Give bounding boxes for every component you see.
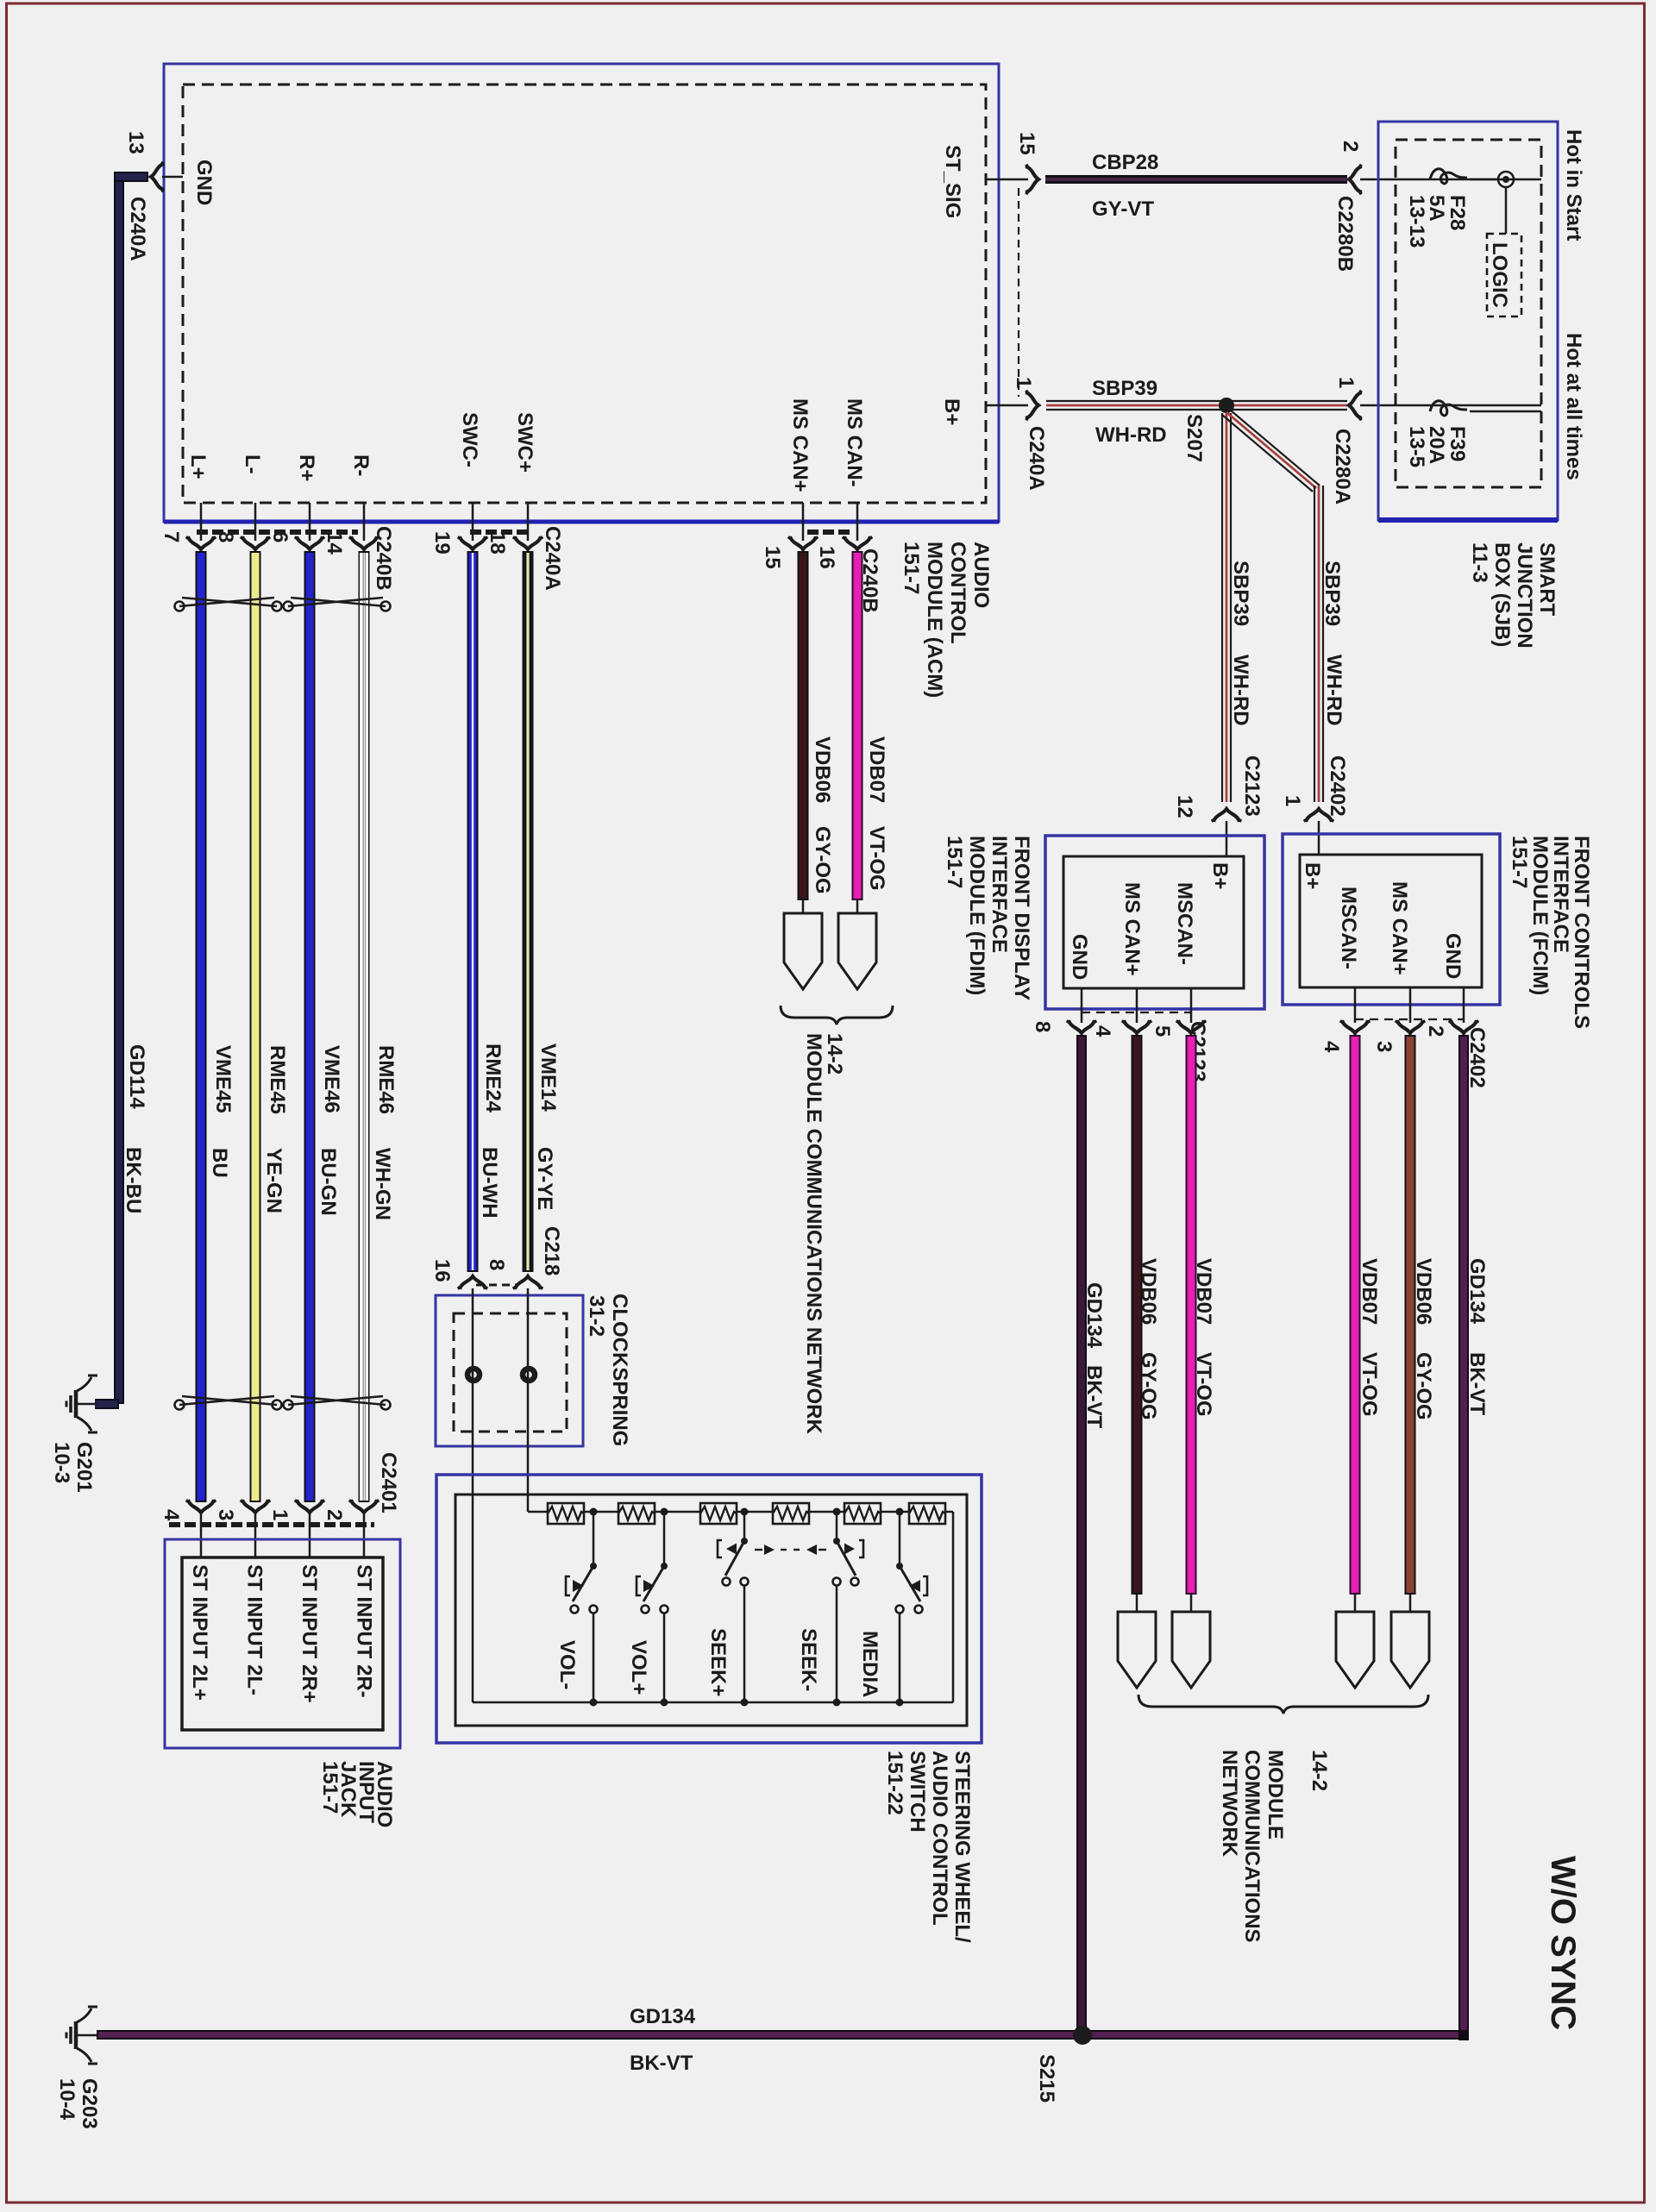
svg-text:ST INPUT 2L-: ST INPUT 2L- xyxy=(243,1564,267,1695)
svg-text:15: 15 xyxy=(1015,132,1038,155)
svg-text:13-5: 13-5 xyxy=(1405,426,1428,467)
svg-text:4: 4 xyxy=(160,1509,183,1521)
svg-text:BK-VT: BK-VT xyxy=(630,2052,693,2075)
svg-text:AUDIO CONTROL: AUDIO CONTROL xyxy=(928,1751,951,1926)
svg-text:VOL+: VOL+ xyxy=(627,1640,650,1695)
svg-text:ST_SIG: ST_SIG xyxy=(941,145,964,218)
svg-text:C218: C218 xyxy=(540,1226,563,1275)
svg-text:VDB07: VDB07 xyxy=(1192,1258,1215,1325)
svg-text:GND: GND xyxy=(1441,933,1465,979)
svg-text:VT-OG: VT-OG xyxy=(1358,1352,1381,1417)
svg-text:Hot at all times: Hot at all times xyxy=(1562,333,1585,480)
svg-text:SEEK+: SEEK+ xyxy=(706,1628,730,1696)
svg-text:7: 7 xyxy=(160,531,183,542)
svg-text:151-7: 151-7 xyxy=(943,836,966,888)
svg-text:C2402: C2402 xyxy=(1326,755,1349,817)
svg-text:GD114: GD114 xyxy=(125,1044,148,1109)
svg-text:STEERING WHEEL/: STEERING WHEEL/ xyxy=(950,1751,974,1943)
svg-text:ST INPUT 2R-: ST INPUT 2R- xyxy=(353,1564,376,1698)
svg-text:1: 1 xyxy=(1334,377,1358,388)
svg-text:10-3: 10-3 xyxy=(50,1442,73,1483)
svg-text:C2401: C2401 xyxy=(377,1452,400,1513)
svg-text:Hot in Start: Hot in Start xyxy=(1562,129,1585,241)
svg-text:VDB06: VDB06 xyxy=(1412,1258,1435,1325)
svg-text:RME46: RME46 xyxy=(374,1045,398,1114)
svg-text:16: 16 xyxy=(430,1259,454,1282)
svg-text:GY-YE: GY-YE xyxy=(533,1147,556,1210)
svg-text:VDB06: VDB06 xyxy=(1137,1258,1160,1325)
svg-text:MODULE (FDIM): MODULE (FDIM) xyxy=(965,836,988,995)
svg-text:SWC+: SWC+ xyxy=(513,412,536,473)
svg-text:MODULE (FCIM): MODULE (FCIM) xyxy=(1528,836,1552,995)
svg-text:2: 2 xyxy=(323,1509,346,1520)
svg-text:JUNCTION: JUNCTION xyxy=(1513,542,1536,649)
svg-text:B+: B+ xyxy=(940,398,963,425)
svg-text:C2280A: C2280A xyxy=(1331,429,1354,504)
svg-text:14-2: 14-2 xyxy=(1308,1750,1331,1791)
svg-text:COMMUNICATIONS: COMMUNICATIONS xyxy=(1240,1750,1264,1943)
svg-text:GD134: GD134 xyxy=(1465,1258,1489,1325)
svg-text:NETWORK: NETWORK xyxy=(1218,1750,1241,1858)
svg-text:RME24: RME24 xyxy=(481,1043,505,1113)
svg-text:SBP39: SBP39 xyxy=(1229,561,1252,626)
svg-text:ST INPUT 2L+: ST INPUT 2L+ xyxy=(188,1564,211,1701)
svg-text:11-3: 11-3 xyxy=(1468,542,1491,583)
svg-text:BU: BU xyxy=(208,1148,231,1178)
svg-text:14: 14 xyxy=(323,531,346,555)
svg-text:C240B: C240B xyxy=(858,548,881,613)
svg-text:FRONT CONTROLS: FRONT CONTROLS xyxy=(1570,836,1593,1029)
svg-text:GND: GND xyxy=(192,160,216,205)
svg-text:SBP39: SBP39 xyxy=(1092,377,1157,400)
svg-text:VME14: VME14 xyxy=(536,1043,560,1112)
svg-text:MSCAN-: MSCAN- xyxy=(1173,882,1196,965)
svg-text:VDB06: VDB06 xyxy=(811,736,834,803)
svg-text:151-7: 151-7 xyxy=(318,1761,342,1814)
svg-text:B+: B+ xyxy=(1208,862,1232,889)
svg-text:MODULE (ACM): MODULE (ACM) xyxy=(923,542,946,698)
svg-text:MEDIA: MEDIA xyxy=(858,1631,881,1697)
svg-text:BK-VT: BK-VT xyxy=(1465,1352,1489,1416)
svg-text:BOX (SJB): BOX (SJB) xyxy=(1490,542,1514,647)
svg-text:12: 12 xyxy=(1173,795,1196,818)
svg-text:151-22: 151-22 xyxy=(883,1751,906,1815)
svg-text:VOL-: VOL- xyxy=(555,1640,579,1689)
svg-text:F39: F39 xyxy=(1446,426,1469,461)
svg-text:AUDIO: AUDIO xyxy=(969,542,993,608)
svg-text:BU-GN: BU-GN xyxy=(317,1148,340,1216)
svg-text:GD134: GD134 xyxy=(630,2005,696,2028)
svg-text:R+: R+ xyxy=(295,454,318,481)
svg-text:L-: L- xyxy=(241,454,264,474)
svg-text:CLOCKSPRING: CLOCKSPRING xyxy=(608,1294,631,1446)
svg-text:151-7: 151-7 xyxy=(900,542,923,594)
svg-text:BK-BU: BK-BU xyxy=(122,1147,145,1213)
svg-text:GY-OG: GY-OG xyxy=(811,826,834,894)
svg-text:MS CAN+: MS CAN+ xyxy=(1388,881,1411,975)
svg-text:4: 4 xyxy=(1320,1041,1343,1053)
svg-text:SEEK-: SEEK- xyxy=(797,1628,820,1691)
svg-text:VT-OG: VT-OG xyxy=(865,826,888,891)
svg-text:CONTROL: CONTROL xyxy=(946,542,969,644)
svg-text:MS CAN+: MS CAN+ xyxy=(788,398,812,492)
svg-text:C240A: C240A xyxy=(126,197,149,261)
svg-text:VDB07: VDB07 xyxy=(1358,1258,1381,1325)
svg-text:MSCAN-: MSCAN- xyxy=(1337,887,1360,969)
svg-text:SWC-: SWC- xyxy=(458,412,481,467)
svg-text:VME46: VME46 xyxy=(320,1045,343,1113)
svg-text:ST INPUT 2R+: ST INPUT 2R+ xyxy=(298,1564,321,1703)
svg-text:S215: S215 xyxy=(1035,2054,1058,2102)
svg-text:GY-OG: GY-OG xyxy=(1412,1352,1435,1420)
svg-text:BK-VT: BK-VT xyxy=(1082,1365,1106,1429)
svg-text:C240A: C240A xyxy=(541,526,564,591)
svg-text:MODULE COMMUNICATIONS NETWORK: MODULE COMMUNICATIONS NETWORK xyxy=(802,1033,825,1435)
svg-text:GND: GND xyxy=(1068,934,1091,980)
svg-text:WH-RD: WH-RD xyxy=(1322,655,1345,726)
svg-text:FRONT DISPLAY: FRONT DISPLAY xyxy=(1010,836,1033,1000)
svg-text:INTERFACE: INTERFACE xyxy=(988,836,1011,953)
svg-text:C240B: C240B xyxy=(372,526,395,591)
svg-text:VT-OG: VT-OG xyxy=(1192,1352,1215,1417)
svg-text:W/O SYNC: W/O SYNC xyxy=(1544,1856,1582,2030)
svg-text:5: 5 xyxy=(1151,1025,1174,1037)
svg-text:GD134: GD134 xyxy=(1082,1282,1106,1349)
svg-text:F28: F28 xyxy=(1446,195,1469,230)
svg-text:VME45: VME45 xyxy=(211,1045,235,1113)
svg-text:3: 3 xyxy=(1372,1041,1396,1052)
svg-text:RME45: RME45 xyxy=(266,1045,289,1114)
svg-text:151-7: 151-7 xyxy=(1508,836,1531,888)
svg-text:GY-OG: GY-OG xyxy=(1137,1352,1160,1420)
svg-text:14-2: 14-2 xyxy=(823,1033,846,1075)
svg-text:SWITCH: SWITCH xyxy=(906,1751,929,1833)
svg-text:3: 3 xyxy=(214,1509,237,1520)
svg-text:C2123: C2123 xyxy=(1240,755,1264,817)
svg-text:G203: G203 xyxy=(78,2078,101,2129)
svg-text:19: 19 xyxy=(430,531,454,555)
svg-text:15: 15 xyxy=(761,546,784,569)
svg-text:C2280B: C2280B xyxy=(1333,196,1357,272)
svg-text:C2402: C2402 xyxy=(1465,1027,1489,1088)
svg-text:R-: R- xyxy=(349,454,373,476)
svg-text:SBP39: SBP39 xyxy=(1320,561,1344,626)
svg-text:8: 8 xyxy=(1031,1021,1054,1032)
svg-text:1: 1 xyxy=(1281,795,1304,806)
svg-text:2: 2 xyxy=(1339,141,1362,152)
svg-text:WH-RD: WH-RD xyxy=(1229,655,1252,726)
svg-text:8: 8 xyxy=(485,1259,508,1270)
svg-text:C240A: C240A xyxy=(1025,426,1048,491)
svg-text:13: 13 xyxy=(124,131,147,154)
svg-text:MS CAN-: MS CAN- xyxy=(843,398,866,487)
svg-text:13-13: 13-13 xyxy=(1405,195,1428,248)
svg-text:MS CAN+: MS CAN+ xyxy=(1120,882,1144,976)
svg-text:G201: G201 xyxy=(72,1442,96,1493)
svg-text:VDB07: VDB07 xyxy=(865,736,888,803)
svg-text:WH-RD: WH-RD xyxy=(1095,423,1167,447)
svg-text:BU-WH: BU-WH xyxy=(478,1147,501,1219)
svg-text:31-2: 31-2 xyxy=(585,1295,608,1337)
svg-text:2: 2 xyxy=(1424,1025,1447,1037)
svg-text:L+: L+ xyxy=(186,454,210,479)
svg-text:1: 1 xyxy=(268,1509,292,1520)
svg-text:WH-GN: WH-GN xyxy=(371,1148,394,1220)
svg-text:B+: B+ xyxy=(1301,862,1324,889)
svg-text:MODULE: MODULE xyxy=(1264,1750,1287,1839)
svg-text:CBP28: CBP28 xyxy=(1092,151,1158,174)
svg-text:INTERFACE: INTERFACE xyxy=(1549,836,1572,953)
svg-text:16: 16 xyxy=(815,546,838,569)
svg-text:YE-GN: YE-GN xyxy=(262,1148,285,1213)
svg-text:18: 18 xyxy=(486,531,509,555)
svg-text:LOGIC: LOGIC xyxy=(1488,242,1511,308)
svg-text:S207: S207 xyxy=(1182,414,1206,462)
svg-text:10-4: 10-4 xyxy=(55,2078,78,2121)
svg-text:GY-VT: GY-VT xyxy=(1092,197,1154,221)
svg-text:1: 1 xyxy=(1012,377,1035,388)
svg-text:4: 4 xyxy=(1091,1025,1114,1037)
svg-text:SMART: SMART xyxy=(1535,542,1559,617)
